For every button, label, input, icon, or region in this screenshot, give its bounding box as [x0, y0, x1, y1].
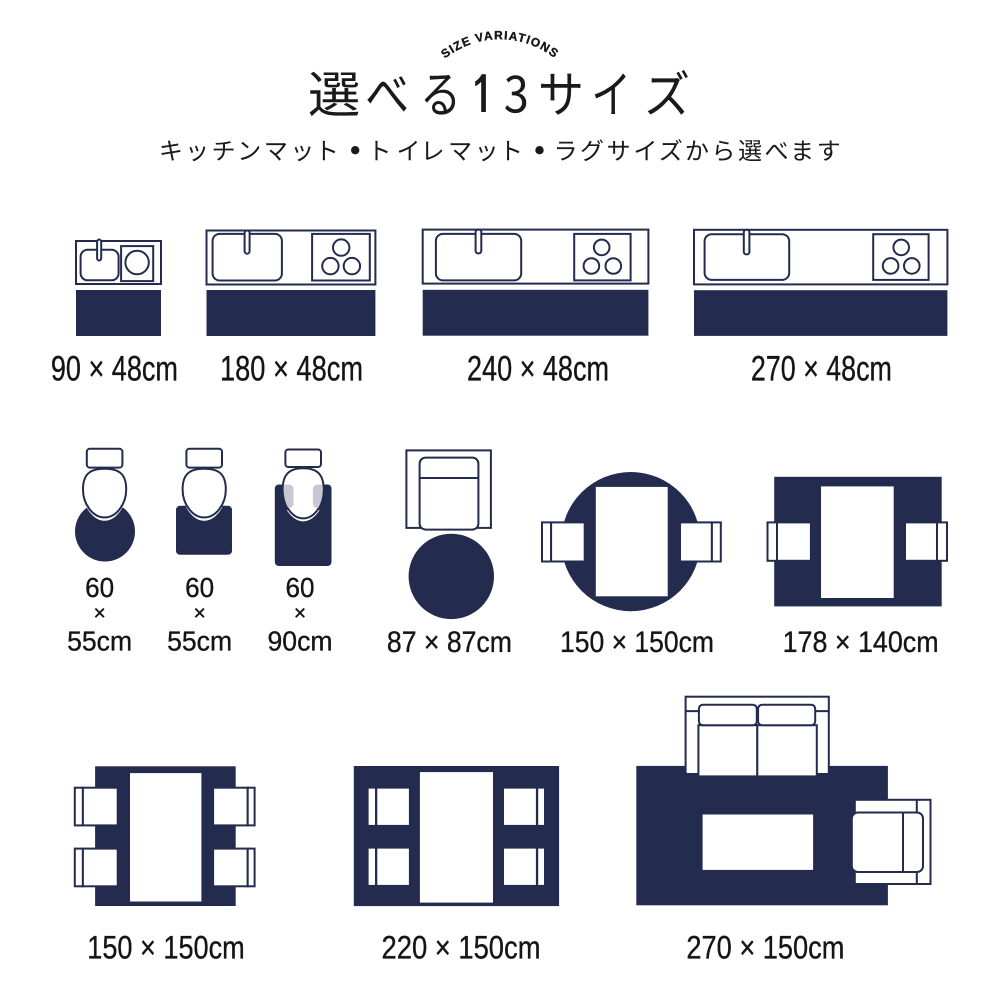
svg-text:150 × 150cm: 150 × 150cm	[560, 626, 714, 659]
svg-text:270 × 150cm: 270 × 150cm	[686, 929, 844, 965]
svg-text:220 × 150cm: 220 × 150cm	[382, 929, 541, 965]
svg-text:60: 60	[286, 572, 315, 603]
svg-text:240 × 48cm: 240 × 48cm	[467, 349, 609, 388]
svg-text:87 × 87cm: 87 × 87cm	[387, 626, 512, 659]
svg-text:270 × 48cm: 270 × 48cm	[751, 349, 892, 388]
svg-text:90 × 48cm: 90 × 48cm	[51, 349, 178, 388]
svg-text:×: ×	[93, 602, 105, 625]
svg-text:55cm: 55cm	[167, 626, 232, 657]
svg-text:×: ×	[294, 602, 306, 625]
svg-text:90cm: 90cm	[268, 626, 333, 657]
svg-text:×: ×	[193, 602, 205, 625]
svg-text:55cm: 55cm	[67, 626, 132, 657]
svg-text:60: 60	[185, 572, 214, 603]
svg-text:178 × 140cm: 178 × 140cm	[783, 626, 939, 659]
svg-text:60: 60	[85, 572, 114, 603]
svg-text:150 × 150cm: 150 × 150cm	[87, 929, 245, 965]
svg-text:180 × 48cm: 180 × 48cm	[220, 349, 363, 388]
